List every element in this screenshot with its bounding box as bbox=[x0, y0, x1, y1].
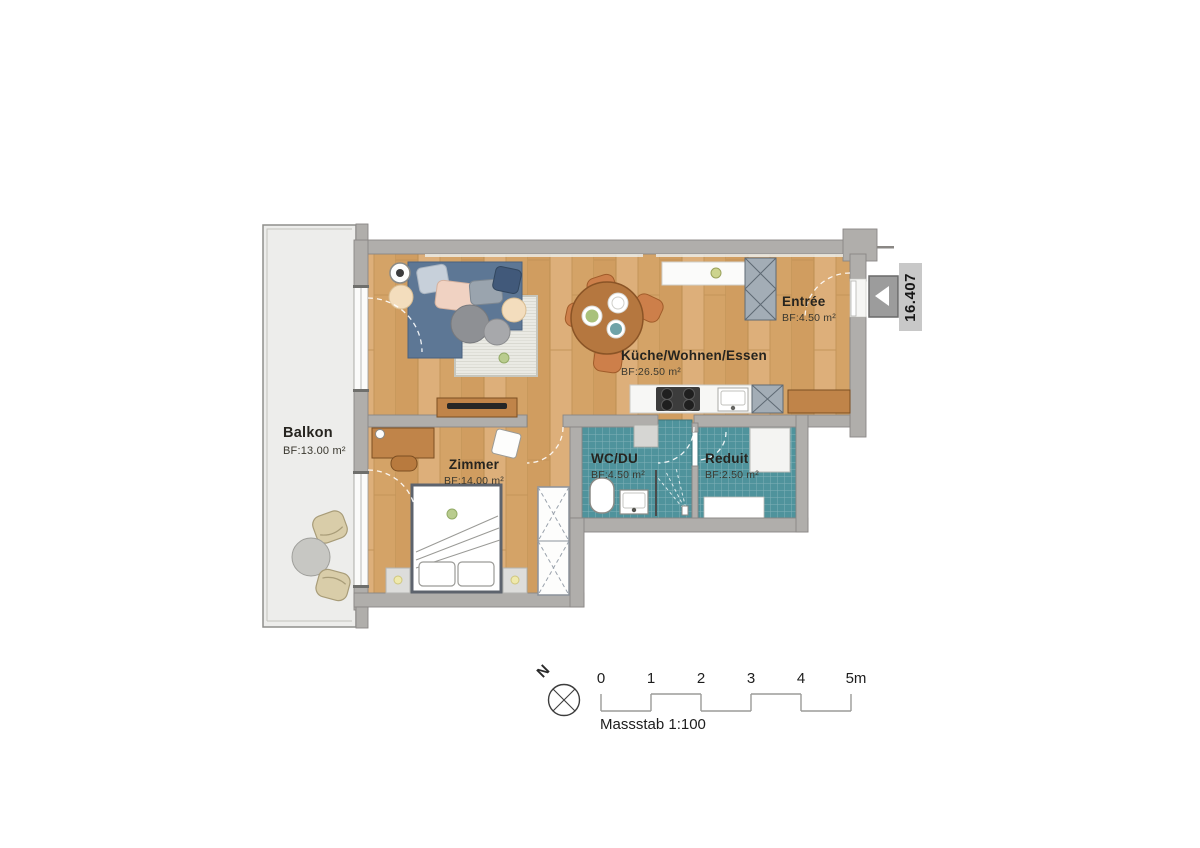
plant bbox=[711, 268, 721, 278]
kitchen-island bbox=[662, 262, 750, 285]
desk-chair bbox=[391, 456, 417, 471]
pillow bbox=[419, 562, 455, 586]
washer-box bbox=[750, 428, 790, 472]
floor-plan: Balkon BF:13.00 m² Küche/Wohnen/Essen BF… bbox=[0, 0, 1200, 848]
bed bbox=[412, 485, 501, 592]
north-compass-icon bbox=[549, 685, 580, 716]
window-bedroom bbox=[353, 471, 369, 588]
scale-tick-5: 5m bbox=[846, 670, 867, 687]
wardrobe bbox=[538, 487, 569, 595]
pillow bbox=[458, 562, 494, 586]
tv bbox=[447, 403, 507, 409]
bedroom-chair bbox=[491, 428, 521, 458]
scale-tick-0: 0 bbox=[597, 670, 605, 687]
armchair-pouf bbox=[389, 285, 413, 309]
shaft-kitchen bbox=[752, 385, 783, 413]
wall-tie-line bbox=[877, 246, 894, 249]
scale-caption: Massstab 1:100 bbox=[600, 716, 706, 733]
scale-tick-3: 3 bbox=[747, 670, 755, 687]
scale-tick-1: 1 bbox=[647, 670, 655, 687]
ceiling-light bbox=[447, 509, 457, 519]
bath-shaft bbox=[634, 425, 658, 447]
tv-sideboard bbox=[437, 398, 517, 417]
desk-lamp bbox=[376, 430, 385, 439]
unit-number: 16.407 bbox=[902, 273, 919, 322]
window-living bbox=[353, 285, 369, 392]
entrance-arrow-icon bbox=[869, 276, 898, 317]
scale-bar bbox=[601, 694, 851, 711]
scale-tick-2: 2 bbox=[697, 670, 705, 687]
entree-bench bbox=[788, 390, 850, 413]
shaft-entree bbox=[745, 258, 776, 320]
pillow bbox=[492, 266, 522, 295]
entrance-door bbox=[850, 279, 866, 317]
shower-head bbox=[682, 506, 688, 515]
wall-inner-trim bbox=[425, 254, 843, 257]
floor-lamp bbox=[390, 263, 410, 283]
kitchen-counter bbox=[630, 385, 752, 413]
unit-number-tag: 16.407 bbox=[899, 263, 922, 331]
toilet bbox=[590, 478, 614, 513]
scale-tick-4: 4 bbox=[797, 670, 805, 687]
storage-niche bbox=[704, 497, 764, 518]
